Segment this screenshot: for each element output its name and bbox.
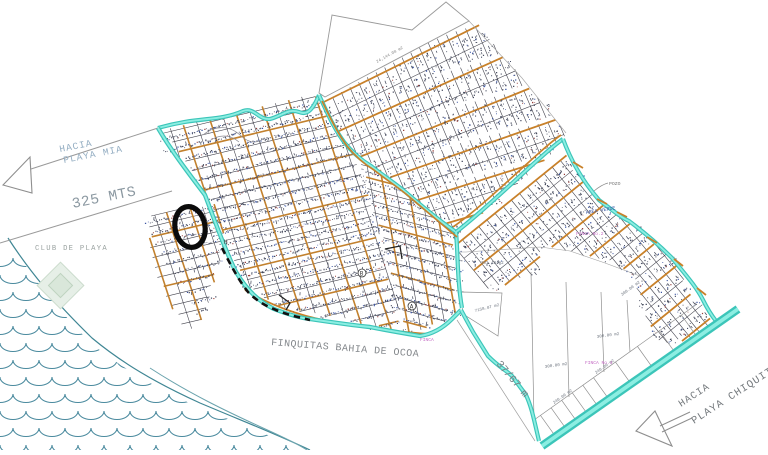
svg-text:POZO: POZO xyxy=(609,181,621,187)
svg-text:A: A xyxy=(410,303,414,310)
svg-text:H: H xyxy=(224,239,228,246)
svg-text:301.48 m2: 301.48 m2 xyxy=(481,262,504,266)
svg-text:CLUB DE PLAYA: CLUB DE PLAYA xyxy=(35,245,108,253)
svg-text:FINCA No.2: FINCA No.2 xyxy=(576,231,604,237)
svg-text:FINCA No.4: FINCA No.4 xyxy=(585,360,613,366)
svg-text:B: B xyxy=(360,270,364,277)
svg-text:FINCA: FINCA xyxy=(420,337,434,343)
